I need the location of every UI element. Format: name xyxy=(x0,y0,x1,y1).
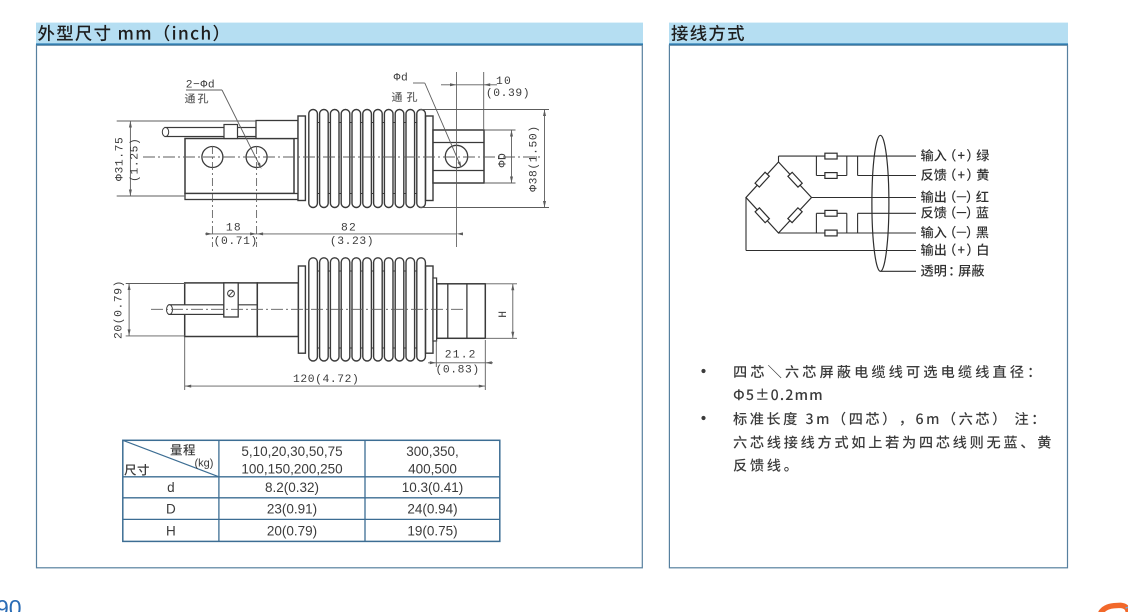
svg-text:120(4.72): 120(4.72) xyxy=(293,374,359,386)
svg-text:Φ38(1.50): Φ38(1.50) xyxy=(529,125,541,191)
svg-text:20(0.79): 20(0.79) xyxy=(267,523,317,538)
svg-text:(1.25): (1.25) xyxy=(130,138,142,182)
svg-text:400,500: 400,500 xyxy=(408,462,457,477)
svg-text:20(0.79): 20(0.79) xyxy=(114,280,126,339)
svg-text:5,10,20,30,50,75: 5,10,20,30,50,75 xyxy=(241,444,342,459)
svg-text:(0.83): (0.83) xyxy=(435,365,479,377)
svg-text:d: d xyxy=(167,480,175,495)
svg-text:21.2: 21.2 xyxy=(445,350,477,362)
svg-text:(kg): (kg) xyxy=(195,458,214,470)
svg-text:23(0.91): 23(0.91) xyxy=(267,502,317,517)
svg-text:24(0.94): 24(0.94) xyxy=(407,502,457,517)
svg-text:90: 90 xyxy=(0,595,22,612)
svg-text:H: H xyxy=(498,310,510,317)
svg-text:H: H xyxy=(166,523,176,538)
svg-text:82: 82 xyxy=(341,223,357,235)
svg-text:(0.39): (0.39) xyxy=(486,88,530,100)
svg-text:ΦD: ΦD xyxy=(498,153,510,168)
svg-text:(0.71): (0.71) xyxy=(214,236,258,248)
svg-text:Φ31.75: Φ31.75 xyxy=(115,137,127,181)
svg-text:19(0.75): 19(0.75) xyxy=(407,523,457,538)
svg-text:8.2(0.32): 8.2(0.32) xyxy=(265,480,319,495)
svg-text:Φd: Φd xyxy=(394,73,409,85)
svg-text:300,350,: 300,350, xyxy=(406,444,459,459)
svg-text:10.3(0.41): 10.3(0.41) xyxy=(402,480,464,495)
svg-text:18: 18 xyxy=(226,223,242,235)
svg-text:D: D xyxy=(166,502,176,517)
svg-text:10: 10 xyxy=(496,76,512,88)
svg-text:(3.23): (3.23) xyxy=(330,236,374,248)
svg-text:100,150,200,250: 100,150,200,250 xyxy=(241,462,342,477)
